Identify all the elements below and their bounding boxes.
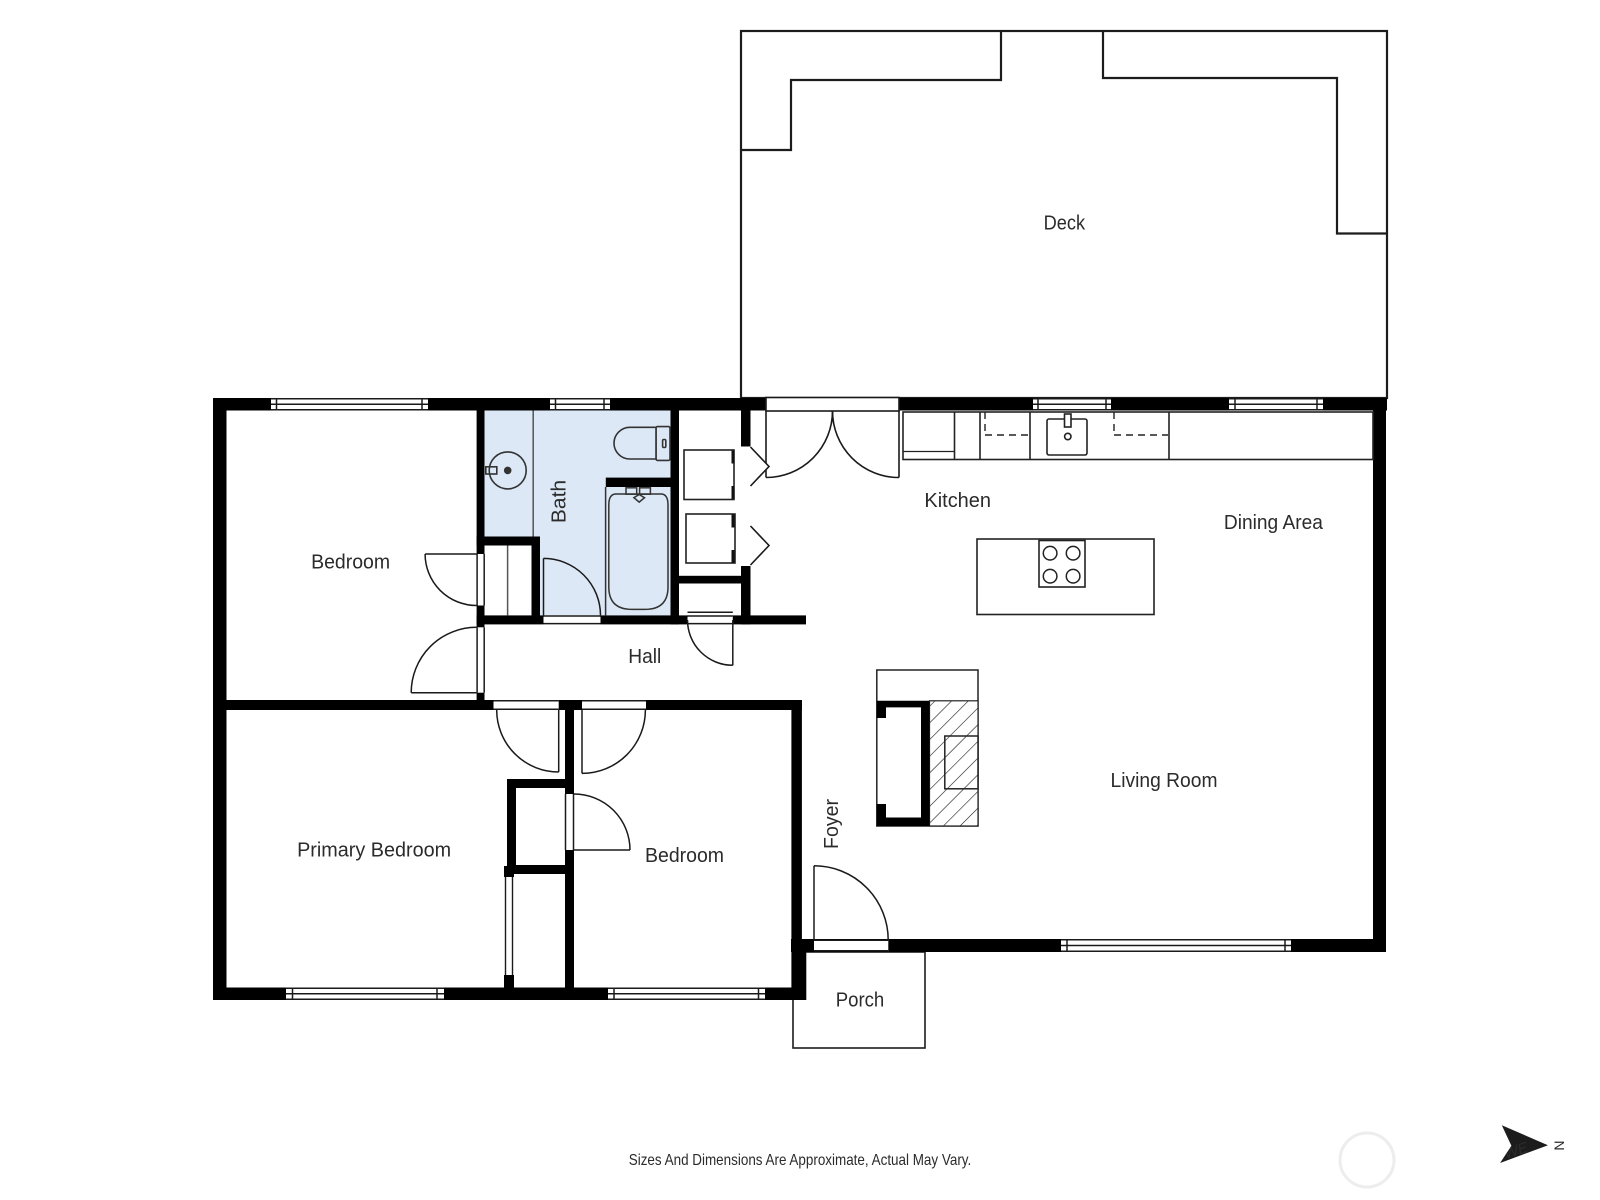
svg-text:Living Room: Living Room <box>1111 770 1218 792</box>
svg-text:Bedroom: Bedroom <box>311 552 390 574</box>
svg-text:Deck: Deck <box>1044 213 1086 235</box>
svg-text:Primary Bedroom: Primary Bedroom <box>297 840 451 862</box>
svg-text:Bedroom: Bedroom <box>645 845 724 867</box>
svg-text:N: N <box>1552 1140 1568 1150</box>
svg-text:Porch: Porch <box>836 990 885 1012</box>
svg-text:Sizes And Dimensions Are Appro: Sizes And Dimensions Are Approximate, Ac… <box>629 1152 972 1169</box>
svg-text:Kitchen: Kitchen <box>924 490 991 512</box>
svg-text:Bath: Bath <box>549 480 571 523</box>
svg-text:Foyer: Foyer <box>821 799 843 849</box>
svg-text:Dining Area: Dining Area <box>1224 512 1324 534</box>
svg-text:Hall: Hall <box>628 646 661 668</box>
